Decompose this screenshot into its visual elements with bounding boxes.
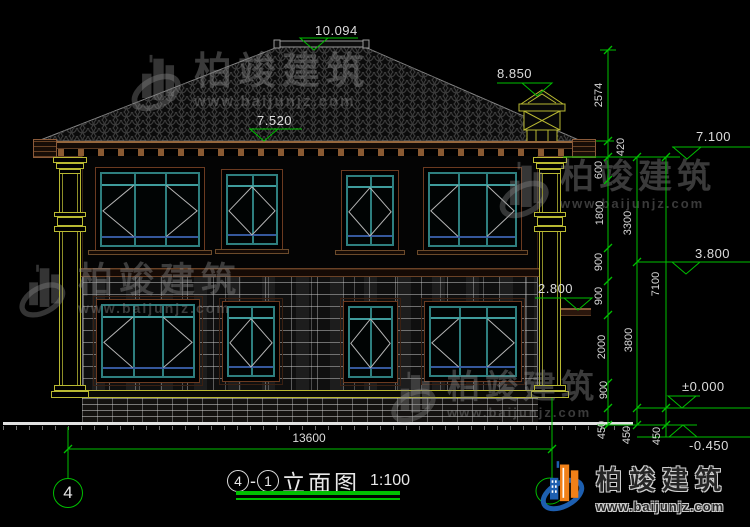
level-value-peak: 10.094 [315, 23, 358, 38]
dim-900: 900 [593, 253, 605, 271]
dim-450: 450 [651, 427, 663, 445]
grid-bubble-left: 4 [53, 478, 83, 508]
elevation-drawing-canvas: 柏竣建筑 www.baijunjz.com 柏竣建筑 www.baijunjz.… [0, 0, 750, 527]
level-marker-peak [300, 38, 358, 50]
watermark-brand: 柏竣建筑 [560, 160, 716, 196]
level-value-zero: ±0.000 [682, 379, 725, 394]
dim-450: 450 [621, 426, 633, 444]
window-1f-large-left [96, 299, 200, 383]
ground-line [3, 422, 633, 425]
hip-roof [38, 40, 581, 141]
title-underline-thin [236, 498, 400, 500]
watermark: 柏竣建筑 www.baijunjz.com [128, 53, 370, 115]
ground-hatch [3, 426, 633, 430]
window-1f-small-left [222, 301, 280, 382]
window-sill [215, 249, 289, 254]
level-marker-7100 [672, 147, 750, 159]
level-value-chimney: 8.850 [497, 66, 532, 81]
dim-13600: 13600 [292, 431, 325, 445]
side-canopy [559, 308, 591, 316]
window-sill [88, 250, 212, 255]
dim-3800: 3800 [623, 328, 635, 352]
title-dash: - [250, 471, 256, 492]
title-underline-thick [236, 491, 400, 495]
dim-2574: 2574 [593, 83, 605, 107]
level-value-grade: -0.450 [689, 438, 729, 453]
watermark-site: www.baijunjz.com [560, 196, 716, 211]
title-scale: 1:100 [370, 472, 410, 490]
dim-3300: 3300 [622, 211, 634, 235]
dim-450: 450 [596, 421, 608, 439]
floor-string-course [79, 268, 541, 277]
window-sill [335, 250, 405, 255]
eave-dentils [38, 149, 593, 156]
title-grid-num-4: 4 [227, 470, 249, 492]
eave-fascia [35, 141, 596, 149]
level-value-2800: 2.800 [538, 281, 573, 296]
window-2f-large-right [423, 167, 522, 252]
window-2f-large-left [95, 167, 205, 252]
window-2f-small-left [221, 169, 283, 250]
level-marker-zero [637, 396, 750, 408]
brand-logo-site: www.baijunjz.com [596, 499, 728, 514]
brand-logo-text: 柏竣建筑 [596, 460, 728, 497]
watermark-brand: 柏竣建筑 [194, 53, 370, 93]
window-1f-small-right [343, 301, 398, 383]
brick-base [82, 398, 538, 423]
dim-2000: 2000 [596, 335, 608, 359]
plinth-band [79, 390, 541, 398]
eave-end-cap-left [33, 139, 57, 158]
window-1f-large-right [424, 301, 522, 382]
dim-900: 900 [598, 381, 610, 399]
level-value-7100: 7.100 [696, 129, 731, 144]
dimension-connectors [563, 50, 697, 425]
dimension-chain-lines [608, 50, 666, 437]
brand-logo: 柏竣建筑 www.baijunjz.com [540, 455, 728, 519]
overall-dimension-ticks [64, 445, 556, 453]
watermark-logo-icon [128, 53, 190, 115]
eave-end-cap-right [572, 139, 596, 158]
watermark-site: www.baijunjz.com [194, 93, 370, 110]
dim-600: 600 [593, 161, 605, 179]
brand-logo-icon [540, 455, 590, 519]
level-value-eave: 7.520 [257, 113, 292, 128]
dim-420: 420 [615, 138, 627, 156]
level-marker-eave [250, 129, 302, 141]
dimension-ticks [604, 46, 670, 429]
window-2f-small-right [341, 170, 399, 251]
title-grid-num-1: 1 [257, 470, 279, 492]
level-value-3800: 3.800 [695, 246, 730, 261]
chimney [519, 90, 565, 142]
dim-900: 900 [593, 287, 605, 305]
level-marker-chimney [497, 83, 552, 96]
dim-1800: 1800 [594, 201, 606, 225]
window-sill [417, 250, 528, 255]
dim-7100: 7100 [650, 272, 662, 296]
